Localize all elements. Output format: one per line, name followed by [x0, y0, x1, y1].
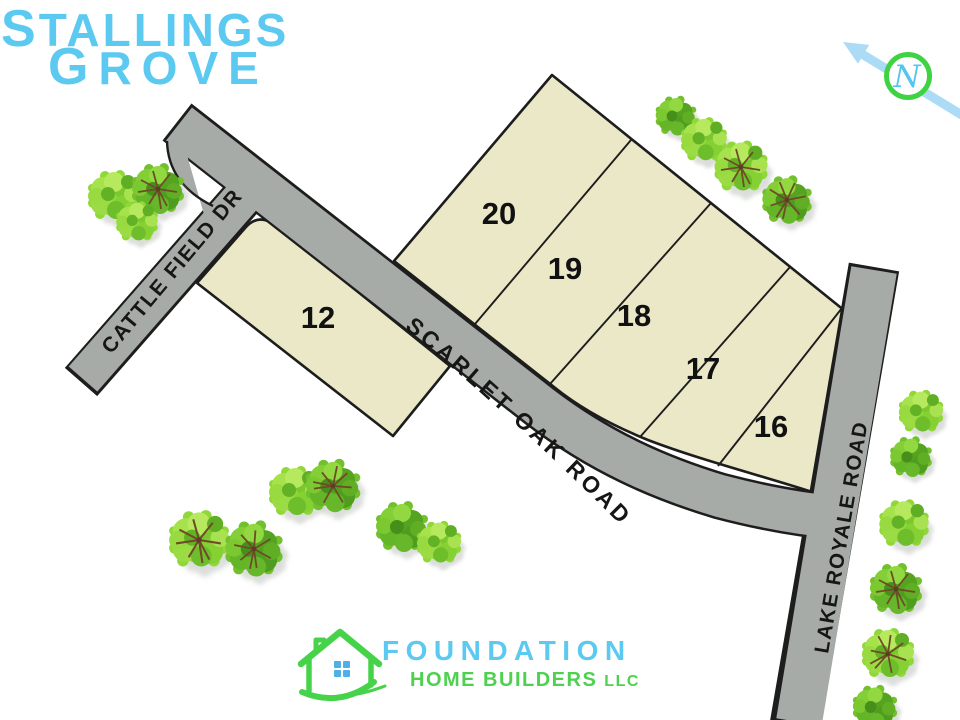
page-title: STALLINGS GROVE — [1, 0, 289, 96]
title-word2-rest: ROVE — [98, 42, 268, 94]
lot-12-label: 12 — [301, 300, 335, 335]
tree-icon — [879, 499, 933, 554]
svg-text:HOME BUILDERSLLC: HOME BUILDERSLLC — [410, 669, 640, 691]
house-window — [334, 661, 350, 677]
tree-icon — [853, 685, 901, 720]
title-word1-initial: S — [1, 0, 39, 58]
lot-19-label: 19 — [548, 251, 582, 286]
logo-suffix: LLC — [604, 673, 640, 690]
lot-16-label: 16 — [754, 409, 788, 444]
tree-icon — [890, 436, 936, 482]
site-map: CATTLE FIELD DR SCARLET OAK ROAD LAKE RO… — [0, 0, 960, 720]
compass: N — [843, 42, 960, 117]
tree-icon — [899, 390, 947, 439]
plat-map-canvas: CATTLE FIELD DR SCARLET OAK ROAD LAKE RO… — [0, 0, 960, 720]
north-label: N — [892, 59, 922, 95]
lot-18-label: 18 — [617, 298, 651, 333]
house-icon — [301, 632, 385, 698]
logo-subtitle: HOME BUILDERS — [410, 669, 597, 691]
tree-icon — [225, 520, 288, 584]
builder-logo: FOUNDATION HOME BUILDERSLLC — [301, 632, 640, 698]
lot-17-label: 17 — [686, 351, 720, 386]
svg-text:GROVE: GROVE — [48, 38, 269, 96]
lot-20-label: 20 — [482, 196, 516, 231]
logo-name: FOUNDATION — [382, 635, 632, 666]
title-word2-initial: G — [48, 38, 98, 96]
